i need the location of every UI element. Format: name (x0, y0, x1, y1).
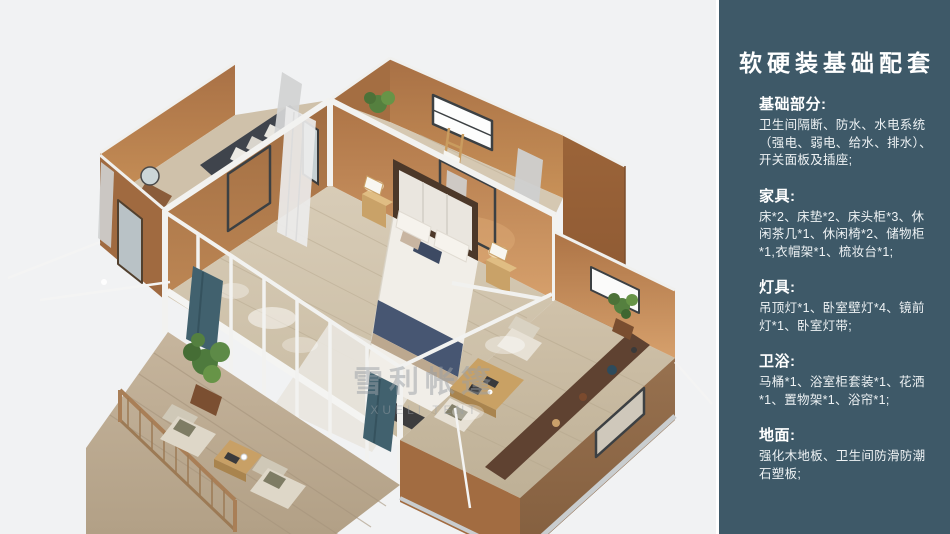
render-area: 雪利帐篷 XUELI TENT (0, 0, 716, 534)
section-body: 马桶*1、浴室柜套装*1、花洒*1、置物架*1、浴帘*1; (759, 374, 936, 409)
section-body: 强化木地板、卫生间防滑防潮石塑板; (759, 448, 936, 483)
section-body: 床*2、床垫*2、床头柜*3、休闲茶几*1、休闲椅*2、储物柜*1,衣帽架*1、… (759, 209, 936, 262)
slide: 雪利帐篷 XUELI TENT 软硬装基础配套 基础部分: 卫生间隔断、防水、水… (0, 0, 950, 534)
section-body: 吊顶灯*1、卧室壁灯*4、镜前灯*1、卧室灯带; (759, 300, 936, 335)
section-body: 卫生间隔断、防水、水电系统（强电、弱电、给水、排水）、开关面板及插座; (759, 117, 936, 170)
round-mirror (141, 167, 159, 185)
panel-title: 软硬装基础配套 (739, 44, 942, 78)
tent-suite-isometric-render: 雪利帐篷 XUELI TENT (0, 0, 716, 534)
section-basics: 基础部分: 卫生间隔断、防水、水电系统（强电、弱电、给水、排水）、开关面板及插座… (759, 95, 936, 170)
svg-text:雪利帐篷: 雪利帐篷 (353, 366, 497, 399)
section-bathroom: 卫浴: 马桶*1、浴室柜套装*1、花洒*1、置物架*1、浴帘*1; (759, 352, 936, 409)
section-heading: 家具: (759, 187, 936, 207)
watermark: 雪利帐篷 XUELI TENT (353, 366, 497, 417)
section-heading: 卫浴: (759, 352, 936, 372)
section-flooring: 地面: 强化木地板、卫生间防滑防潮石塑板; (759, 426, 936, 483)
section-heading: 地面: (759, 426, 936, 446)
section-heading: 灯具: (759, 278, 936, 298)
section-heading: 基础部分: (759, 95, 936, 115)
spec-sections: 基础部分: 卫生间隔断、防水、水电系统（强电、弱电、给水、排水）、开关面板及插座… (759, 95, 936, 483)
section-furniture: 家具: 床*2、床垫*2、床头柜*3、休闲茶几*1、休闲椅*2、储物柜*1,衣帽… (759, 187, 936, 262)
svg-text:XUELI TENT: XUELI TENT (370, 403, 479, 417)
section-lighting: 灯具: 吊顶灯*1、卧室壁灯*4、镜前灯*1、卧室灯带; (759, 278, 936, 335)
spec-panel: 软硬装基础配套 基础部分: 卫生间隔断、防水、水电系统（强电、弱电、给水、排水）… (719, 0, 950, 534)
